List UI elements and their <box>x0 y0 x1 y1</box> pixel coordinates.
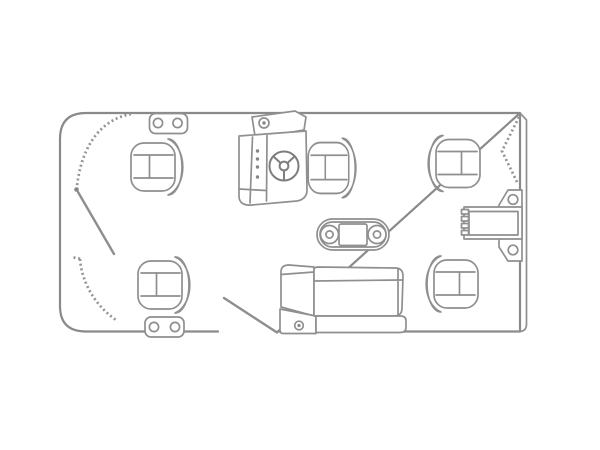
seat-top-right: Stern pedestal fishing seat, top <box>428 136 480 192</box>
seat-top-left: Bow pedestal fishing seat, top <box>131 139 183 195</box>
bow-fence-upper: Bow fence rail, upper section <box>74 114 131 192</box>
lounge-bench: Aft lounge bench with armrest <box>280 265 406 334</box>
helm-console: Helm console with gauges Steering wheel <box>239 111 307 205</box>
side-gate-open: Side boarding gate shown open <box>224 298 277 333</box>
compass-icon <box>259 118 269 128</box>
boarding-ladder: Boarding ladder on transom bracket <box>462 190 523 261</box>
hinge-plate-bottom: Deck hinge plate, bottom rail <box>145 317 184 337</box>
seat-bottom-right: Stern pedestal fishing seat, bottom <box>426 256 478 312</box>
helm-chair: Captain's helm chair <box>308 138 356 197</box>
bow-gate-open: Bow gate shown open <box>78 192 114 254</box>
pontoon-floor-plan-drawing: Pontoon deck outline Stern rub rail (dou… <box>0 0 600 450</box>
dinette-table: Dinette table with two cup holders <box>317 219 389 250</box>
floor-plan-figure: Pontoon deck outline Stern rub rail (dou… <box>0 0 600 450</box>
hinge-plate-top: Deck hinge plate, top rail <box>150 114 188 134</box>
seat-bottom-left: Bow pedestal fishing seat, bottom <box>138 257 190 313</box>
bow-fence-lower: Bow fence rail, lower section <box>74 258 117 321</box>
